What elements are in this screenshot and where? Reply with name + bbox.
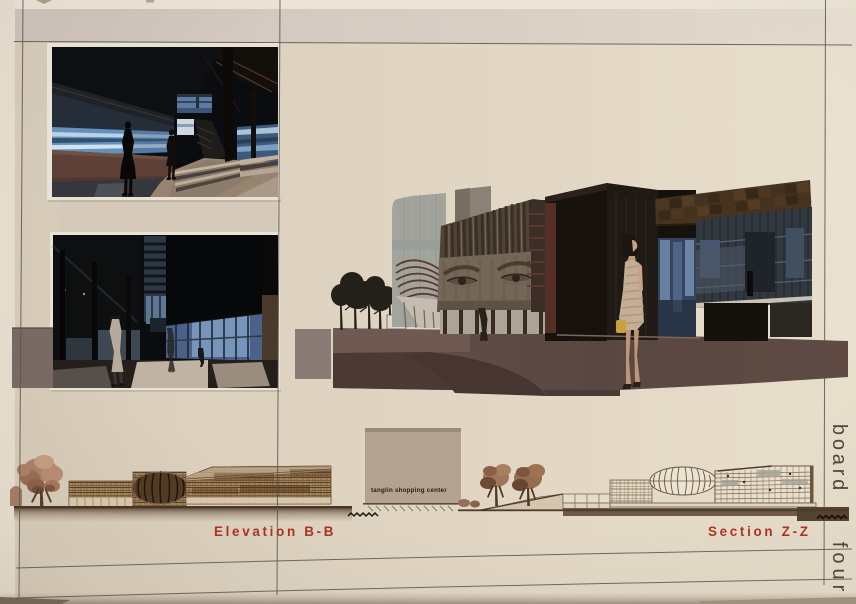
svg-text:board: board: [828, 424, 850, 494]
svg-text:tanglin shopping center: tanglin shopping center: [371, 487, 447, 494]
svg-text:Section Z-Z: Section Z-Z: [708, 524, 811, 539]
svg-text:Elevation B-B: Elevation B-B: [214, 524, 336, 539]
svg-text:four: four: [828, 542, 850, 596]
